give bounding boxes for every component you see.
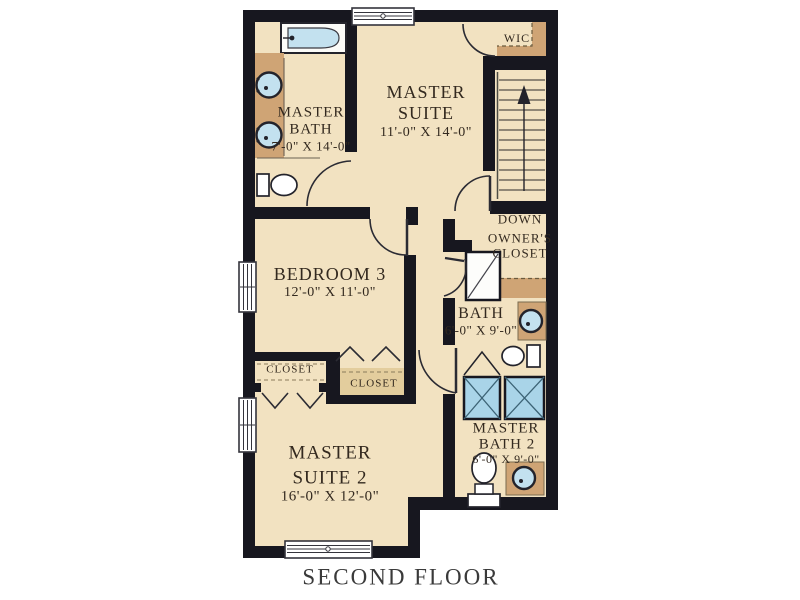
floorplan-page: MASTER BATH 7'-0" X 14'-0" MASTER SUITE … xyxy=(0,0,800,600)
owners-closet-label-line2: CLOSET xyxy=(492,247,547,260)
window-top xyxy=(352,8,414,25)
bath-name: BATH xyxy=(458,306,504,322)
bath-vanity xyxy=(518,302,546,340)
master-bath2-dimensions: 6'-0" X 9'-0" xyxy=(472,453,539,465)
closet-right-label: CLOSET xyxy=(350,379,398,390)
sink-4 xyxy=(513,467,535,489)
stairs-down-label: DOWN xyxy=(498,213,542,226)
master-bath-name-line1: MASTER xyxy=(278,106,345,121)
master-suite-dimensions: 11'-0" X 14'-0" xyxy=(380,126,472,140)
master-bath2-vanity xyxy=(506,462,544,495)
floor-title: SECOND FLOOR xyxy=(302,566,499,589)
bath-dimensions: 6'-0" X 9'-0" xyxy=(445,324,517,337)
master-bath-name-line2: BATH xyxy=(289,123,332,138)
master-bath-dimensions: 7'-0" X 14'-0" xyxy=(271,140,350,153)
master-bath2-name-line2: BATH 2 xyxy=(479,438,535,453)
shower-unit-1 xyxy=(464,377,500,419)
owners-closet-shelf xyxy=(500,278,546,298)
window-left-bedroom3 xyxy=(239,262,256,312)
bedroom3-name: BEDROOM 3 xyxy=(274,265,387,283)
sink-1 xyxy=(256,73,281,98)
bathtub xyxy=(281,23,346,53)
shower-unit-2 xyxy=(505,377,544,419)
master-suite2-dimensions: 16'-0" X 12'-0" xyxy=(281,490,379,505)
master-suite-name-line1: MASTER xyxy=(386,83,465,101)
window-bottom xyxy=(285,541,372,558)
owners-closet-label-line1: OWNER'S xyxy=(488,232,552,245)
master-suite-name-line2: SUITE xyxy=(398,104,454,122)
master-suite2-name-line1: MASTER xyxy=(288,444,371,463)
master-suite2-name-line2: SUITE 2 xyxy=(292,469,367,488)
toilet-master-bath xyxy=(257,174,297,196)
window-left-master-suite2 xyxy=(239,398,256,452)
closet-left-label: CLOSET xyxy=(266,365,314,376)
wic-label: WIC xyxy=(504,32,530,44)
bedroom3-dimensions: 12'-0" X 11'-0" xyxy=(284,286,376,300)
master-bath2-name-line1: MASTER xyxy=(473,422,540,437)
sink-3 xyxy=(520,310,542,332)
